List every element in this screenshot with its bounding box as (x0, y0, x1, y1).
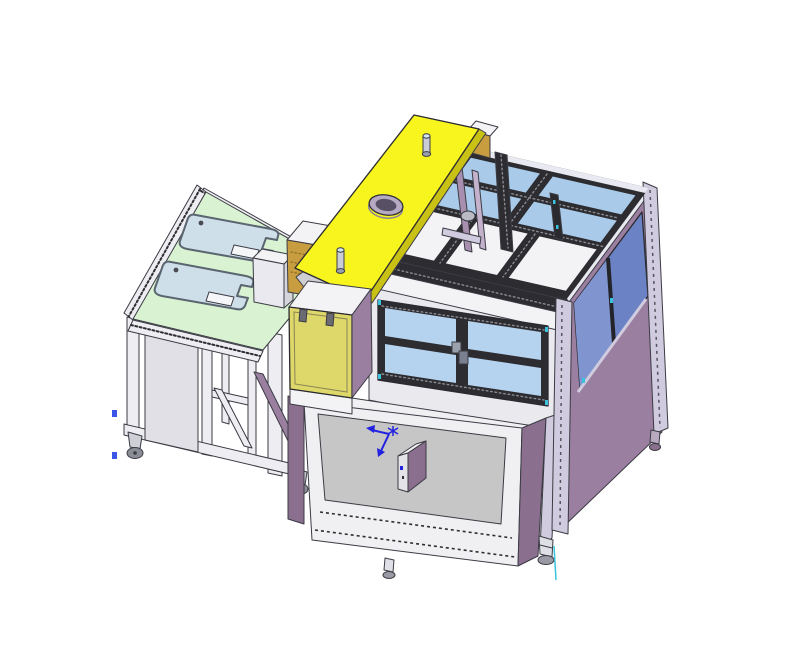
datum-mark-2 (112, 452, 117, 459)
door-hinge-1 (299, 309, 307, 322)
cyan-clip-2 (582, 378, 585, 383)
table-mid-leg (202, 345, 212, 456)
access-door-box (289, 281, 372, 414)
cyan-clip-1 (610, 298, 613, 303)
back-foot (650, 444, 661, 451)
tray-1-hole (199, 221, 204, 226)
front-right-post (552, 298, 572, 534)
locating-pin-2 (336, 248, 344, 274)
leveling-foot-right (538, 536, 554, 565)
datum-mark-1 (112, 410, 117, 417)
machine-assembly-drawing (0, 0, 800, 653)
table-left-leg (127, 317, 139, 432)
table-side-panel (145, 332, 198, 452)
back-foot-stem (650, 430, 660, 444)
window-handle-lower[interactable] (459, 351, 468, 364)
base-left-purple-strip (288, 396, 304, 524)
cad-viewport[interactable] (0, 0, 800, 653)
door-hinge-2 (326, 313, 334, 326)
locating-pin-1 (422, 134, 430, 157)
caster-wheel-left (127, 432, 143, 459)
mech-disc (461, 211, 475, 221)
tray-2-hole (174, 268, 179, 273)
cyan-edge-line (554, 546, 556, 580)
leveling-foot-center (383, 558, 395, 579)
